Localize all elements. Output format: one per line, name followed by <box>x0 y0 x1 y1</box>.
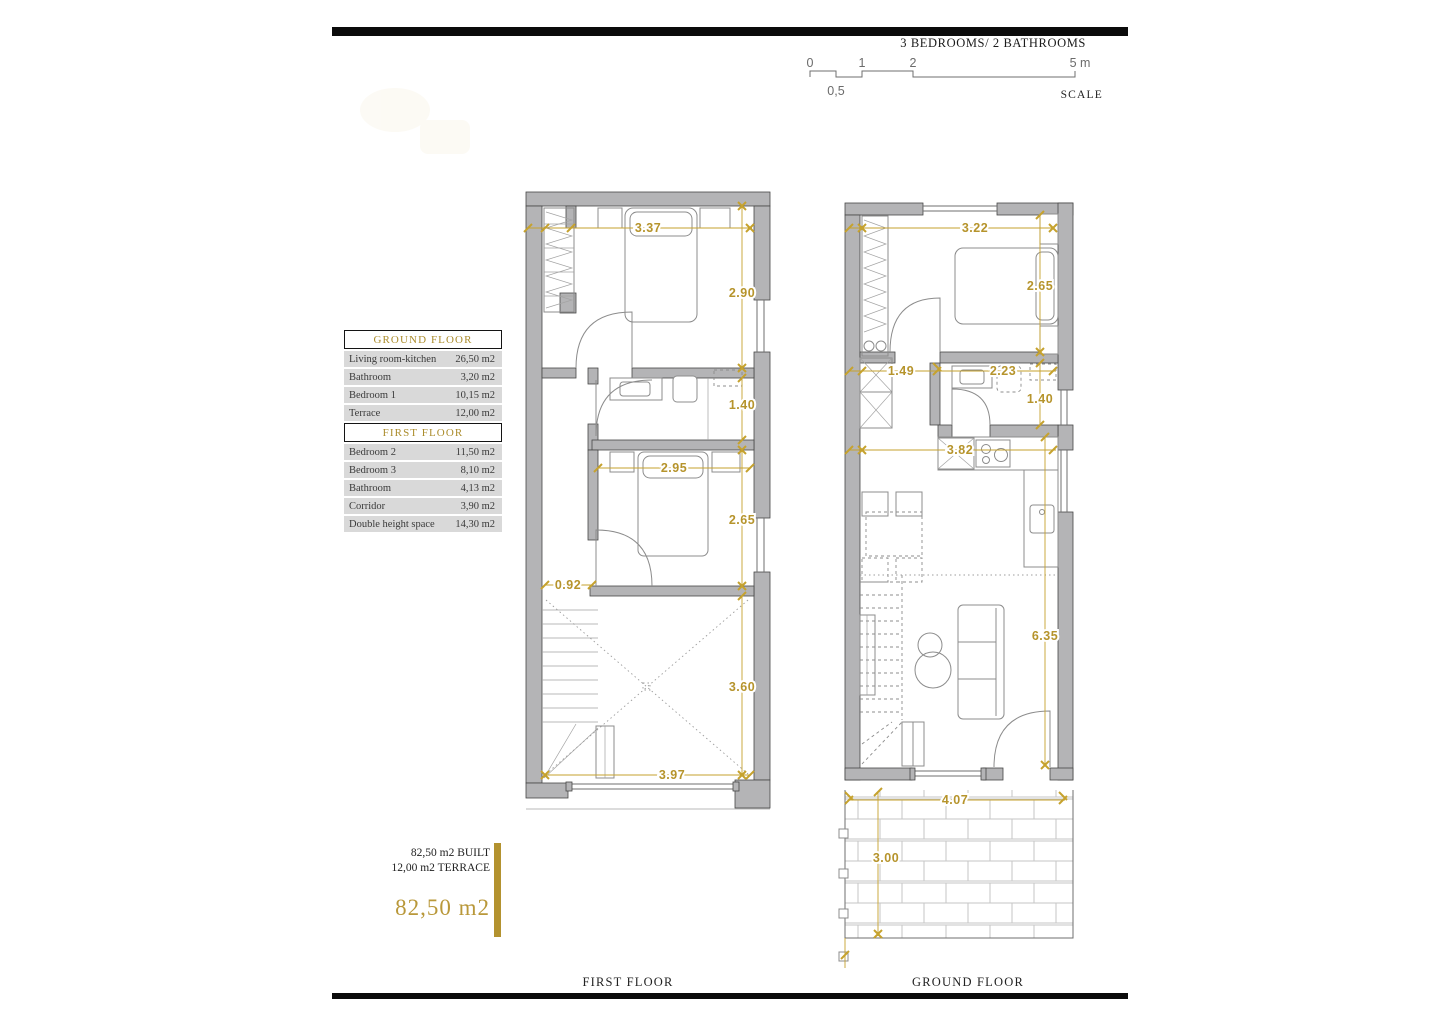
dining-set <box>862 492 922 582</box>
scale-tick-5: 5 m <box>1070 56 1091 70</box>
bedroom2-door-arc <box>576 312 632 368</box>
watermark <box>360 88 470 154</box>
dim-hall-width: 1.49 <box>888 364 914 378</box>
dim-living-height: 6.35 <box>1032 629 1058 643</box>
scale-bar: 0 1 2 5 m 0,5 SCALE <box>807 56 1103 101</box>
dim-bathroom-height: 1.40 <box>729 398 755 412</box>
dim-void-width: 3.97 <box>659 768 685 782</box>
dim-bedroom3-height: 2.65 <box>729 513 755 527</box>
first-floor-label: FIRST FLOOR <box>560 975 696 990</box>
dim-bathroom-height: 1.40 <box>1027 392 1053 406</box>
bedroom2-bed <box>598 208 730 322</box>
dim-void-height: 3.60 <box>729 680 755 694</box>
dim-bedroom1-width: 3.22 <box>962 221 988 235</box>
dim-stair-width: 0.92 <box>555 578 581 592</box>
ground-floor-label: GROUND FLOOR <box>898 975 1038 990</box>
dim-kitchen-width: 3.82 <box>947 443 973 457</box>
floorplan-sheet: 3 BEDROOMS/ 2 BATHROOMS GROUND FLOOR Liv… <box>0 0 1440 1024</box>
dim-bedroom2-height: 2.90 <box>729 286 755 300</box>
ground-floor-plan: 3.22 2.65 1.49 2.23 1.40 3.82 6.35 4.07 … <box>839 203 1073 968</box>
scale-tick-1: 1 <box>859 56 866 70</box>
scale-tick-0: 0 <box>807 56 814 70</box>
scale-tick-2: 2 <box>910 56 917 70</box>
bathroom-first-floor <box>596 370 742 440</box>
plan-drawing: 0 1 2 5 m 0,5 SCALE <box>0 0 1440 1024</box>
scale-label: SCALE <box>1061 89 1103 101</box>
dim-bathroom-width: 2.23 <box>990 364 1016 378</box>
bottom-rule-bar <box>332 993 1128 999</box>
dim-bedroom1-height: 2.65 <box>1027 279 1053 293</box>
living-room <box>860 605 1004 719</box>
first-floor-plan: 3.37 2.90 1.40 2.95 2.65 0.92 3.60 3.97 <box>524 192 770 809</box>
stairs-first-floor <box>542 610 614 778</box>
terrace <box>839 790 1073 961</box>
dim-terrace-height: 3.00 <box>873 851 899 865</box>
dim-bedroom3-width: 2.95 <box>661 461 687 475</box>
entrance-door-arc <box>994 711 1050 767</box>
scale-half-label: 0,5 <box>827 84 844 98</box>
wardrobe <box>862 216 888 356</box>
bedroom1-door-arc <box>890 298 940 352</box>
dim-bedroom2-width: 3.37 <box>635 221 661 235</box>
bathroom-door-arc <box>952 389 990 425</box>
dim-terrace-width: 4.07 <box>942 793 968 807</box>
